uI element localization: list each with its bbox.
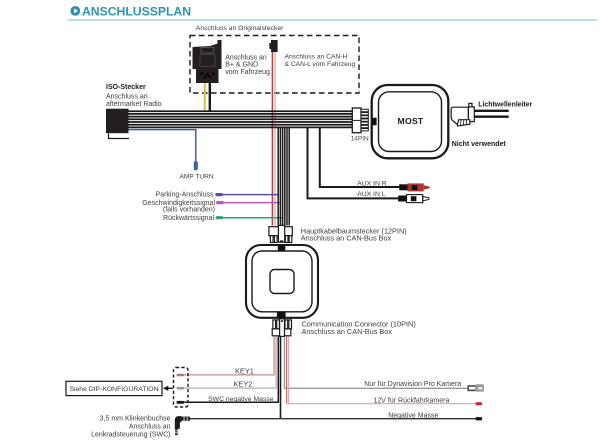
svg-text:AUX IN R: AUX IN R (357, 180, 387, 187)
svg-text:Parking-Anschluss: Parking-Anschluss (156, 191, 214, 198)
svg-text:Siehe DIP-KONFIGURATION: Siehe DIP-KONFIGURATION (69, 386, 158, 393)
svg-text:Nicht verwendet: Nicht verwendet (452, 141, 507, 148)
svg-text:(falls vorhanden): (falls vorhanden) (163, 207, 215, 214)
svg-text:Anschluss an CAN-Bus Box: Anschluss an CAN-Bus Box (301, 234, 392, 243)
svg-text:Negative Masse: Negative Masse (388, 412, 438, 419)
svg-text:Anschluss an: Anschluss an (129, 424, 171, 431)
svg-text:ANSCHLUSSPLAN: ANSCHLUSSPLAN (82, 4, 191, 18)
svg-text:3,5 mm Klinkenbuchse: 3,5 mm Klinkenbuchse (100, 416, 171, 423)
svg-text:14PIN: 14PIN (351, 136, 369, 143)
svg-text:KEY2: KEY2 (234, 380, 253, 389)
svg-text:Nur für Dynavision Pro Kamera: Nur für Dynavision Pro Kamera (364, 381, 461, 388)
svg-text:12V für Rückfahrkamera: 12V für Rückfahrkamera (374, 398, 450, 405)
svg-text:vom Fahrzeug: vom Fahrzeug (225, 69, 270, 76)
svg-text:& CAN-L vom Fahrzeug: & CAN-L vom Fahrzeug (285, 61, 356, 68)
svg-text:Anschluss an CAN-H: Anschluss an CAN-H (285, 54, 348, 61)
svg-text:AUX IN L: AUX IN L (357, 191, 386, 198)
svg-text:Anschluss an CAN-Bus Box: Anschluss an CAN-Bus Box (302, 327, 393, 336)
svg-text:Lenkradsteuerung (SWC): Lenkradsteuerung (SWC) (91, 431, 170, 438)
svg-text:B+ & GND: B+ & GND (225, 62, 258, 69)
svg-text:SWC negative Masse: SWC negative Masse (208, 396, 274, 403)
svg-text:Anschluss an Originalstecker: Anschluss an Originalstecker (196, 25, 284, 32)
svg-text:Lichtwellenleiter: Lichtwellenleiter (478, 102, 532, 109)
svg-text:aftermarket Radio: aftermarket Radio (106, 101, 162, 108)
svg-text:KEY1: KEY1 (235, 367, 254, 376)
svg-text:AMP TURN: AMP TURN (180, 173, 214, 180)
svg-text:MOST: MOST (398, 116, 424, 126)
svg-text:Anschluss an: Anschluss an (225, 54, 267, 61)
svg-text:Anschluss an: Anschluss an (106, 94, 148, 101)
svg-text:Rückwärtssignal: Rückwärtssignal (163, 215, 214, 222)
svg-text:ISO-Stecker: ISO-Stecker (106, 84, 146, 91)
